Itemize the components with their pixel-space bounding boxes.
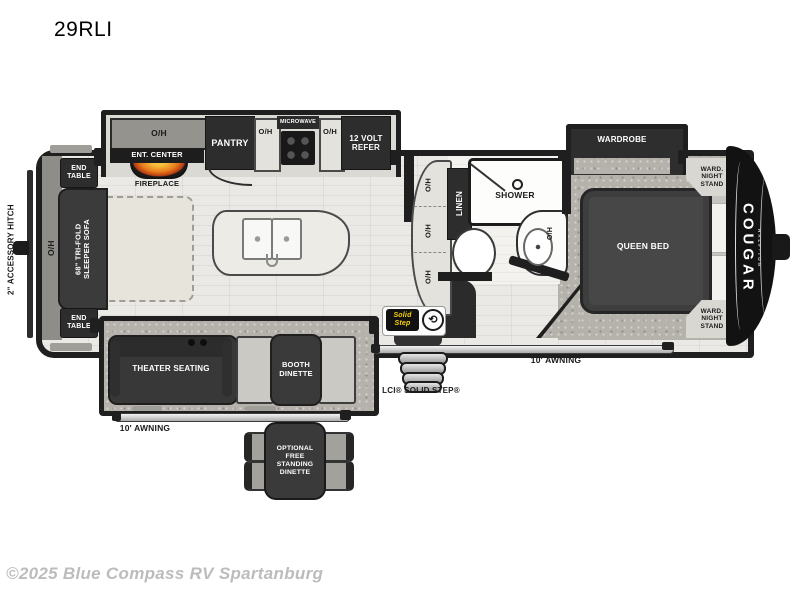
awning-left-cap-right	[340, 410, 351, 420]
solid-step-logo: Solid Step	[386, 309, 419, 331]
ent-overhead-cabinet: O/H	[110, 118, 208, 150]
tri-fold-sofa: 68" TRI-FOLD SLEEPER SOFA	[58, 188, 108, 310]
brand-sub-logo: HALF-TON	[755, 212, 764, 284]
theater-seat-back	[110, 337, 232, 357]
toilet	[452, 228, 496, 278]
rear-bottom-pad	[50, 343, 92, 351]
rear-top-pad	[50, 145, 92, 153]
counter-divider-2	[414, 252, 446, 253]
optional-dinette-table: OPTIONAL FREE STANDING DINETTE	[264, 422, 326, 500]
refrigerator: 12 VOLT REFER	[341, 116, 391, 170]
solid-step-label: LCI® SOLID STEP®	[362, 385, 480, 396]
theater-seating-label: THEATER SEATING	[112, 363, 230, 375]
awning-left-bar	[114, 413, 350, 422]
awning-left-cap-left	[112, 412, 121, 421]
counter-oh-3: O/H	[421, 260, 437, 294]
bath-bedroom-wall	[562, 156, 571, 214]
microwave: MICROWAVE	[277, 116, 319, 129]
counter-oh-1: O/H	[421, 168, 437, 202]
shower-head-icon	[512, 179, 523, 190]
counter-divider-1	[414, 206, 446, 207]
living-slide-bracket-left	[90, 318, 99, 333]
bath-bottom-wall	[438, 272, 492, 281]
floorplan-page: 29RLI 2" ACCESSORY HITCH O/H END TABLE 6…	[0, 0, 800, 600]
wardrobe-bracket-right	[678, 150, 686, 164]
wardrobe-slide-opening	[574, 158, 670, 174]
island-faucet	[266, 254, 278, 267]
theater-cupholder-1	[188, 339, 195, 346]
booth-dinette-table: BOOTH DINETTE	[270, 334, 322, 406]
booth-bench-right	[318, 336, 356, 404]
shower-label: SHOWER	[470, 190, 560, 202]
fireplace-label: FIREPLACE	[126, 179, 188, 189]
living-slide-bracket-right	[369, 318, 379, 334]
awning-right-label: 10' AWNING	[514, 355, 598, 367]
fireplace	[130, 163, 188, 179]
queen-bed-label: QUEEN BED	[588, 240, 698, 254]
pantry: PANTRY	[205, 116, 255, 170]
lci-circle-icon: ⟲	[422, 309, 444, 331]
slide-foot-left	[132, 406, 162, 411]
awning-right-cap-right	[662, 342, 674, 350]
area-rug	[98, 196, 194, 302]
bath-sink-overhead: O/H	[544, 216, 558, 250]
rear-hitch-pin	[13, 241, 29, 255]
copyright-watermark: ©2025 Blue Compass RV Spartanburg	[6, 564, 323, 584]
awning-left-label: 10' AWNING	[112, 423, 178, 435]
front-hitch-pin	[772, 234, 790, 260]
booth-bench-left	[236, 336, 274, 404]
end-table-top: END TABLE	[60, 158, 98, 188]
slide-foot-right	[246, 406, 276, 411]
kitchen-slide-bracket-left	[94, 148, 103, 166]
counter-overhead-right-label: O/H	[319, 126, 341, 138]
stove	[281, 131, 315, 165]
theater-cupholder-2	[200, 339, 207, 346]
page-title: 29RLI	[54, 18, 113, 42]
ent-center: ENT. CENTER	[110, 148, 204, 163]
counter-oh-2: O/H	[421, 214, 437, 248]
awning-right-cap-left	[371, 344, 380, 353]
wardrobe-label: WARDROBE	[566, 132, 678, 148]
counter-overhead-left-label: O/H	[254, 126, 277, 138]
